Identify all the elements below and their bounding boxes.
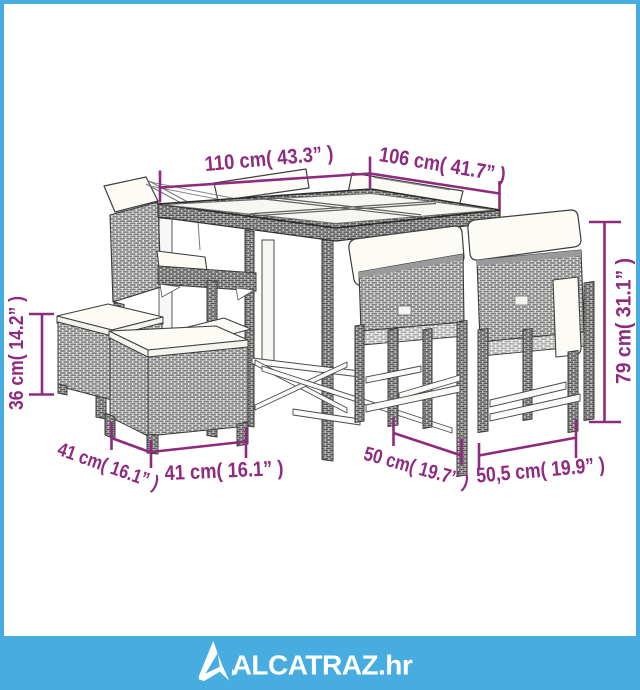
svg-text:36 cm( 14.2” ): 36 cm( 14.2” ) [6,296,28,410]
svg-text:79 cm( 31.1” ): 79 cm( 31.1” ) [613,258,636,384]
svg-text:ALCATRAZ.hr: ALCATRAZ.hr [232,650,413,681]
